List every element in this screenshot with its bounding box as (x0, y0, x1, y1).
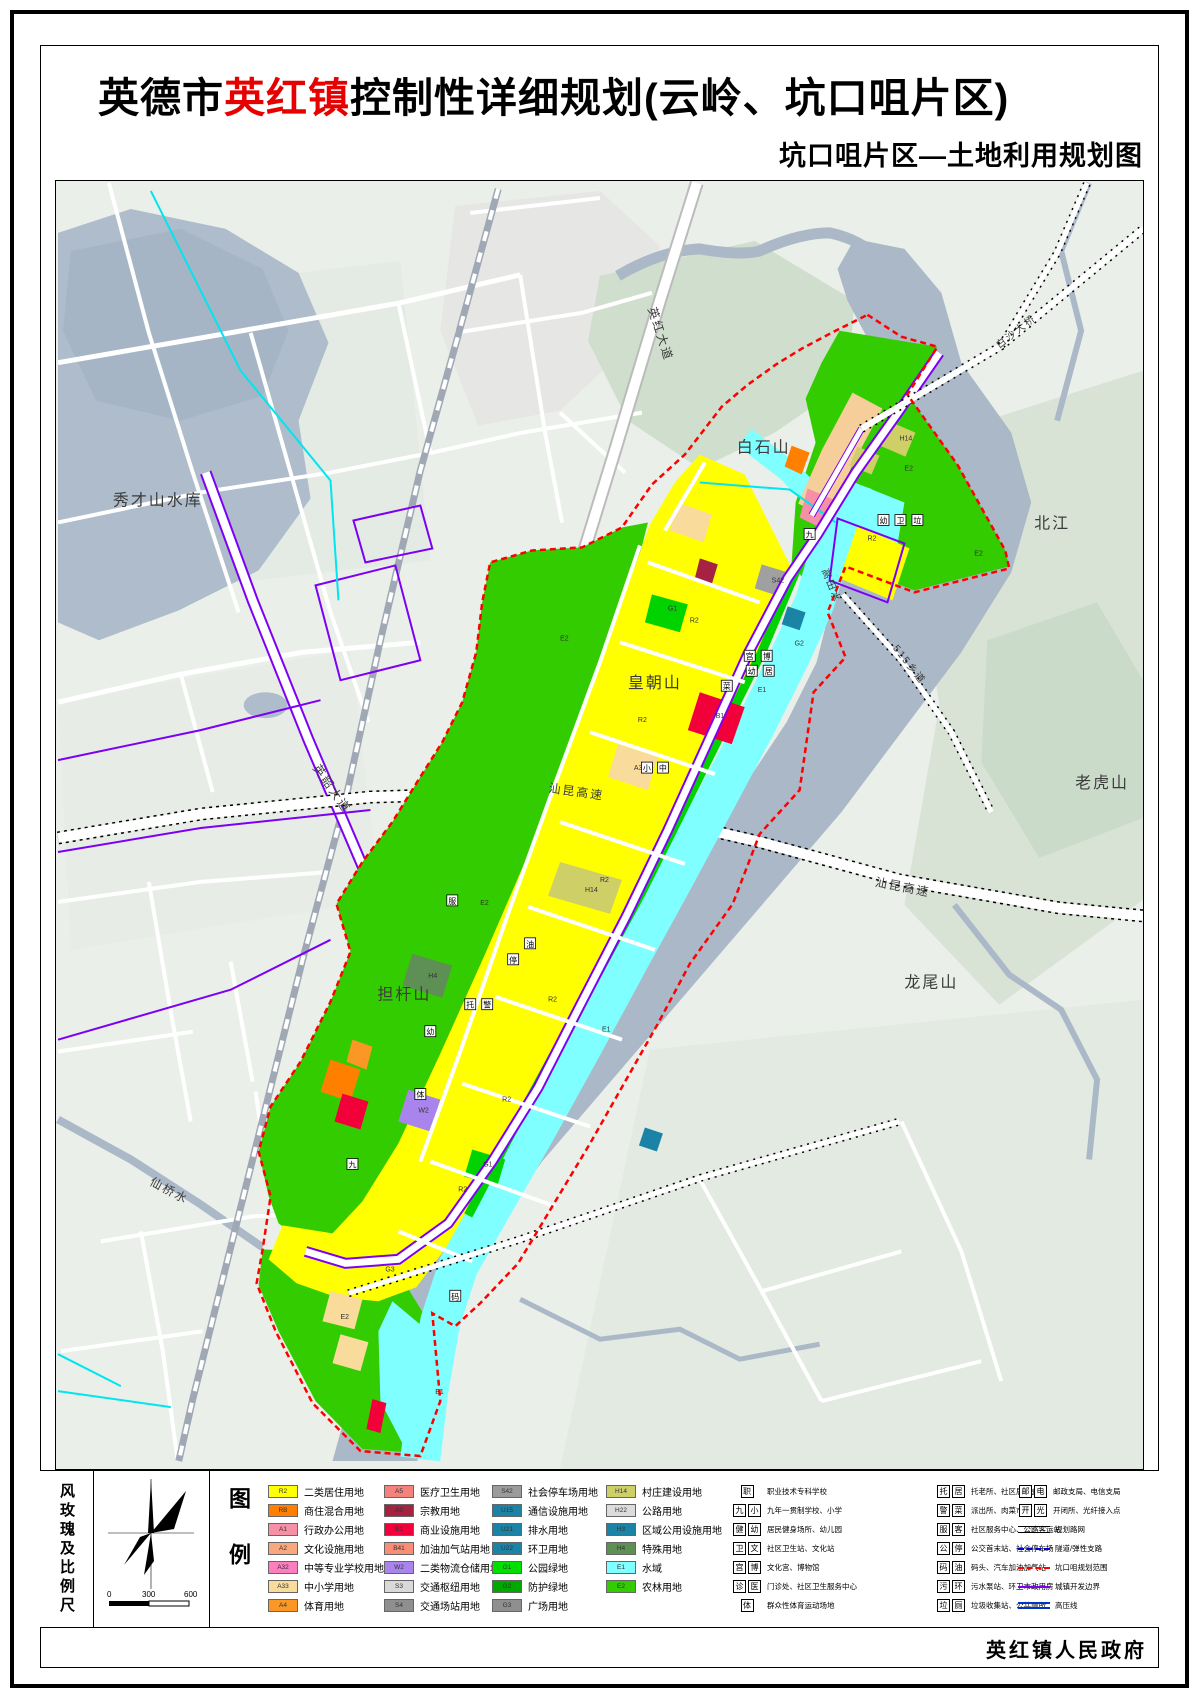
legend-swatch: G3 (492, 1599, 522, 1612)
legend-item: H22公路用地 (606, 1501, 722, 1520)
map-facility-icon: 博 (761, 650, 772, 661)
legend-label: 宗教用地 (420, 1503, 460, 1518)
map-label: 老虎山 (1075, 774, 1129, 792)
legend-icon-pair: 邮电 (1018, 1485, 1048, 1498)
windrose-graphic: 0300600 (94, 1471, 210, 1627)
map-facility-icon: 垃 (912, 514, 923, 525)
legend-label: 隧道/弹性支路 (1055, 1543, 1102, 1554)
plan-sheet: 英德市英红镇控制性详细规划(云岭、坑口咀片区) 坑口咀片区—土地利用规划图 (0, 0, 1199, 1698)
facility-icon: 污 (937, 1580, 950, 1593)
map-facility-icon: 服 (447, 895, 458, 906)
legend-label: 中等专业学校用地 (304, 1560, 384, 1575)
parcel-code: E1 (602, 1027, 611, 1034)
legend-color-column: R2二类居住用地RB商住混合用地A1行政办公用地A2文化设施用地A32中等专业学… (268, 1482, 384, 1615)
legend-item: 体群众性体育运动场地 (732, 1596, 857, 1615)
line-style-sample (1018, 1526, 1050, 1533)
map-label: 白石山 (737, 439, 791, 457)
legend-item: 隧道/弹性支路 (1018, 1539, 1121, 1558)
scalebar-segment (149, 1601, 189, 1606)
facility-icon: 码 (937, 1561, 950, 1574)
legend-item: G1公园绿地 (492, 1558, 598, 1577)
legend-icon-pair: 九小 (732, 1504, 762, 1517)
legend-icon-pair: 开光 (1018, 1504, 1048, 1517)
parcel-code: G2 (795, 640, 804, 647)
legend-swatch: A4 (268, 1599, 298, 1612)
legend-title: 图例 (222, 1487, 254, 1599)
svg-text:幼: 幼 (426, 1027, 434, 1037)
legend-label: 公园绿地 (528, 1560, 568, 1575)
legend-label: 开闭所、光纤接入点 (1053, 1505, 1121, 1516)
legend-label: 文化设施用地 (304, 1541, 364, 1556)
legend-swatch: H3 (606, 1523, 636, 1536)
map-facility-icon: 托 (465, 999, 476, 1010)
svg-text:小: 小 (643, 764, 651, 773)
svg-text:卫: 卫 (896, 516, 904, 525)
footer-bar: 英红镇人民政府 (40, 1628, 1159, 1668)
legend-swatch: H22 (606, 1504, 636, 1517)
legend-item: S4交通场站用地 (384, 1596, 500, 1615)
parcel-code: W2 (418, 1108, 429, 1115)
legend-item: A32中等专业学校用地 (268, 1558, 384, 1577)
legend-item: H4特殊用地 (606, 1539, 722, 1558)
legend-icon-pair: 职 (732, 1485, 762, 1498)
legend-item: A2文化设施用地 (268, 1539, 384, 1558)
parcel-code: R2 (638, 717, 647, 724)
legend-swatch: S42 (492, 1485, 522, 1498)
legend-label: 水域 (642, 1560, 662, 1575)
title-town-highlight: 英红镇 (224, 75, 350, 121)
legend-icon-pair: 诊医 (732, 1580, 762, 1593)
map-subtitle: 坑口咀片区—土地利用规划图 (779, 134, 1143, 173)
facility-icon: 九 (733, 1504, 746, 1517)
legend-item: 职职业技术专科学校 (732, 1482, 857, 1501)
legend-item: A9宗教用地 (384, 1501, 500, 1520)
page-title: 英德市英红镇控制性详细规划(云岭、坑口咀片区) (98, 64, 1009, 124)
legend-item: W2二类物流仓储用地 (384, 1558, 500, 1577)
legend-item: A4体育用地 (268, 1596, 384, 1615)
legend-item: H3区域公用设施用地 (606, 1520, 722, 1539)
legend-label: 交通枢纽用地 (420, 1579, 480, 1594)
legend-label: 农林用地 (642, 1579, 682, 1594)
facility-icon: 停 (952, 1542, 965, 1555)
legend-swatch: A9 (384, 1504, 414, 1517)
legend-label: 城镇开发边界 (1055, 1581, 1100, 1592)
legend-line-column: 邮电邮政支局、电信支局开光开闭所、光纤接入点规划路网隧道/弹性支路坑口咀规划范围… (1018, 1482, 1121, 1615)
facility-icon: 光 (1034, 1504, 1047, 1517)
legend-swatch: G1 (492, 1561, 522, 1574)
svg-text:托: 托 (466, 1000, 474, 1010)
parcel-code: B1 (716, 713, 725, 720)
map-label: 龙尾山 (904, 974, 958, 992)
legend-item: A1行政办公用地 (268, 1520, 384, 1539)
facility-icon: 托 (937, 1485, 950, 1498)
legend-swatch: S3 (384, 1580, 414, 1593)
svg-text:垃: 垃 (913, 515, 921, 525)
legend-swatch: R2 (268, 1485, 298, 1498)
line-style-sample (1018, 1602, 1050, 1609)
publisher-name: 英红镇人民政府 (986, 1634, 1147, 1663)
svg-text:体: 体 (416, 1090, 424, 1100)
map-facility-icon: 油 (525, 938, 536, 949)
legend-label: 加油加气站用地 (420, 1541, 490, 1556)
svg-text:幼: 幼 (748, 666, 756, 676)
map-label: 秀才山水库 (113, 491, 203, 509)
legend-label: 居民健身场所、幼儿园 (767, 1524, 842, 1535)
svg-text:警: 警 (483, 1000, 491, 1010)
legend-item: H14村庄建设用地 (606, 1482, 722, 1501)
legend-icon-column: 职职业技术专科学校九小九年一贯制学校、小学健幼居民健身场所、幼儿园卫文社区卫生站… (732, 1482, 857, 1615)
legend-item: 健幼居民健身场所、幼儿园 (732, 1520, 857, 1539)
legend-icon-pair: 公停 (936, 1542, 966, 1555)
legend-panel: 风玫瑰及比例尺 0300600 图例 R2二类居住用地RB商住混合用地A1行政办… (40, 1470, 1159, 1628)
legend-label: 商住混合用地 (304, 1503, 364, 1518)
svg-text:中: 中 (659, 763, 667, 773)
facility-icon: 博 (748, 1561, 761, 1574)
legend-item: U21排水用地 (492, 1520, 598, 1539)
map-facility-icon: 中 (657, 762, 668, 773)
parcel-code: H4 (428, 973, 437, 980)
facility-icon: 服 (937, 1523, 950, 1536)
facility-icon: 环 (952, 1580, 965, 1593)
legend-label: 群众性体育运动场地 (767, 1600, 835, 1611)
windrose-petal (148, 1479, 154, 1533)
svg-text:幼: 幼 (879, 515, 887, 525)
legend-item: 宫博文化宫、博物馆 (732, 1558, 857, 1577)
legend-icon-pair: 污环 (936, 1580, 966, 1593)
legend-item: B41加油加气站用地 (384, 1539, 500, 1558)
legend-swatch: A32 (268, 1561, 298, 1574)
legend-swatch: E1 (606, 1561, 636, 1574)
line-style-sample (1018, 1548, 1050, 1550)
legend-label: 排水用地 (528, 1522, 568, 1537)
map-facility-icon: 小 (641, 762, 652, 773)
windrose-box: 0300600 (94, 1471, 210, 1627)
legend-swatch: A5 (384, 1485, 414, 1498)
legend-label: 公路用地 (642, 1503, 682, 1518)
legend-swatch: W2 (384, 1561, 414, 1574)
legend-label: 文化宫、博物馆 (767, 1562, 820, 1573)
legend-item: 卫文社区卫生站、文化站 (732, 1539, 857, 1558)
legend-item: U15通信设施用地 (492, 1501, 598, 1520)
legend-icon-pair: 卫文 (732, 1542, 762, 1555)
legend-item: 九小九年一贯制学校、小学 (732, 1501, 857, 1520)
parcel-code: G3 (385, 1266, 394, 1273)
legend-item: A5医疗卫生用地 (384, 1482, 500, 1501)
legend-item: S42社会停车场用地 (492, 1482, 598, 1501)
scalebar-tick: 300 (142, 1590, 156, 1599)
parcel-code: E2 (904, 466, 913, 473)
svg-text:九: 九 (806, 530, 814, 539)
legend-label: 坑口咀规划范围 (1055, 1562, 1108, 1573)
facility-icon: 文 (748, 1542, 761, 1555)
map-facility-icon: 菜 (721, 680, 732, 691)
lowland-south (560, 1000, 1143, 1469)
facility-icon: 菜 (952, 1504, 965, 1517)
legend-icon-pair: 垃厕 (936, 1599, 966, 1612)
legend-label: 医疗卫生用地 (420, 1484, 480, 1499)
legend-swatch: B1 (384, 1523, 414, 1536)
line-style-sample (1018, 1586, 1050, 1588)
legend-label: 门诊处、社区卫生服务中心 (767, 1581, 857, 1592)
facility-icon: 客 (952, 1523, 965, 1536)
parcel-code: S42 (772, 577, 785, 584)
legend-color-column: S42社会停车场用地U15通信设施用地U21排水用地U22环卫用地G1公园绿地G… (492, 1482, 598, 1615)
legend-item: 规划路网 (1018, 1520, 1121, 1539)
map-facility-icon: 码 (450, 1290, 461, 1301)
legend-label: 通信设施用地 (528, 1503, 588, 1518)
legend-icon-pair: 体 (732, 1599, 762, 1612)
map-canvas: E2E2E2E2E2R2R2R2R2R2R2R2G1G1G2E1E1E1H14H… (56, 181, 1143, 1469)
legend-icon-pair: 健幼 (732, 1523, 762, 1536)
legend-item: R2二类居住用地 (268, 1482, 384, 1501)
map-label: 担杆山 (377, 986, 431, 1004)
map-facility-icon: 九 (347, 1158, 358, 1169)
legend-item: A33中小学用地 (268, 1577, 384, 1596)
legend-item: E2农林用地 (606, 1577, 722, 1596)
svg-text:宫: 宫 (746, 651, 754, 661)
legend-label: 区域公用设施用地 (642, 1522, 722, 1537)
parcel-code: R2 (690, 617, 699, 624)
parcel-code: E1 (435, 1389, 444, 1396)
facility-icon: 幼 (748, 1523, 761, 1536)
legend-item: 城镇开发边界 (1018, 1577, 1121, 1596)
parcel-code: E2 (480, 900, 489, 907)
legend-item: RB商住混合用地 (268, 1501, 384, 1520)
map-label: 北江 (1034, 514, 1070, 532)
parcel-code: R2 (868, 535, 877, 542)
facility-icon: 体 (741, 1599, 754, 1612)
legend-swatch: E2 (606, 1580, 636, 1593)
legend-item: G3广场用地 (492, 1596, 598, 1615)
legend-item: 邮电邮政支局、电信支局 (1018, 1482, 1121, 1501)
facility-icon: 开 (1019, 1504, 1032, 1517)
landuse-map: E2E2E2E2E2R2R2R2R2R2R2R2G1G1G2E1E1E1H14H… (55, 180, 1144, 1470)
parcel-code: R2 (548, 997, 557, 1004)
legend-label: 中小学用地 (304, 1579, 354, 1594)
legend-label: 职业技术专科学校 (767, 1486, 827, 1497)
scalebar-ticks: 0300600 (107, 1590, 198, 1599)
legend-label: 规划路网 (1055, 1524, 1085, 1535)
scalebar-tick: 600 (184, 1590, 198, 1599)
parcel-code: R2 (502, 1097, 511, 1104)
legend-label: 高压线 (1055, 1600, 1078, 1611)
map-facility-icon: 幼 (878, 514, 889, 525)
legend-item: 诊医门诊处、社区卫生服务中心 (732, 1577, 857, 1596)
facility-icon: 健 (733, 1523, 746, 1536)
map-facility-icon: 停 (508, 954, 519, 965)
parcel-code: R2 (458, 1186, 467, 1193)
legend-item: U22环卫用地 (492, 1539, 598, 1558)
facility-icon: 居 (952, 1485, 965, 1498)
map-facility-icon: 体 (415, 1089, 426, 1100)
facility-icon: 邮 (1019, 1485, 1032, 1498)
facility-icon: 医 (748, 1580, 761, 1593)
legend-label: 环卫用地 (528, 1541, 568, 1556)
facility-icon: 电 (1034, 1485, 1047, 1498)
facility-icon: 油 (952, 1561, 965, 1574)
legend-item: 高压线 (1018, 1596, 1121, 1615)
parcel-code: E2 (974, 550, 983, 557)
legend-label: 体育用地 (304, 1598, 344, 1613)
legend-label: 二类物流仓储用地 (420, 1560, 500, 1575)
facility-icon: 诊 (733, 1580, 746, 1593)
svg-text:菜: 菜 (723, 681, 731, 691)
legend-swatch: RB (268, 1504, 298, 1517)
facility-icon: 公 (937, 1542, 950, 1555)
legend-label: 村庄建设用地 (642, 1484, 702, 1499)
legend-swatch: A33 (268, 1580, 298, 1593)
legend-label: 商业设施用地 (420, 1522, 480, 1537)
legend-item: E1水域 (606, 1558, 722, 1577)
svg-text:停: 停 (509, 955, 517, 965)
facility-icon: 宫 (733, 1561, 746, 1574)
map-facility-icon: 卫 (895, 514, 906, 525)
legend-label: 广场用地 (528, 1598, 568, 1613)
map-facility-icon: 幼 (746, 665, 757, 676)
parcel-code: H14 (585, 887, 598, 894)
legend-swatch: U15 (492, 1504, 522, 1517)
parcel-code: G1 (668, 605, 677, 612)
legend-item: G2防护绿地 (492, 1577, 598, 1596)
legend-label: 社会停车场用地 (528, 1484, 598, 1499)
facility-icon: 卫 (733, 1542, 746, 1555)
svg-text:码: 码 (451, 1292, 459, 1301)
parcel-code: G1 (483, 1161, 492, 1168)
legend-label: 防护绿地 (528, 1579, 568, 1594)
parcel-code: R2 (600, 877, 609, 884)
legend-swatch: S4 (384, 1599, 414, 1612)
legend-swatch: B41 (384, 1542, 414, 1555)
legend-item: 坑口咀规划范围 (1018, 1558, 1121, 1577)
map-label: 皇朝山 (628, 674, 682, 692)
facility-icon: 小 (748, 1504, 761, 1517)
legend-label: 交通场站用地 (420, 1598, 480, 1613)
legend-swatch: A1 (268, 1523, 298, 1536)
parcel-code: E2 (340, 1314, 349, 1321)
legend-swatch: U21 (492, 1523, 522, 1536)
windrose-sidebar-label: 风玫瑰及比例尺 (40, 1471, 94, 1627)
legend-label: 九年一贯制学校、小学 (767, 1505, 842, 1516)
legend-item: 开光开闭所、光纤接入点 (1018, 1501, 1121, 1520)
legend-swatch: G2 (492, 1580, 522, 1593)
legend-label: 二类居住用地 (304, 1484, 364, 1499)
legend-icon-pair: 宫博 (732, 1561, 762, 1574)
legend-label: 邮政支局、电信支局 (1053, 1486, 1121, 1497)
facility-icon: 厕 (952, 1599, 965, 1612)
legend-icon-pair: 服客 (936, 1523, 966, 1536)
legend-label: 行政办公用地 (304, 1522, 364, 1537)
scalebar-segment (109, 1601, 149, 1606)
svg-text:居: 居 (765, 667, 773, 676)
map-facility-icon: 居 (763, 665, 774, 676)
legend-label: 社区卫生站、文化站 (767, 1543, 835, 1554)
map-facility-icon: 幼 (425, 1026, 436, 1037)
map-facility-icon: 警 (482, 999, 493, 1010)
windrose-petal (151, 1491, 186, 1533)
map-facility-icon: 九 (804, 528, 815, 539)
legend-color-column: H14村庄建设用地H22公路用地H3区域公用设施用地H4特殊用地E1水域E2农林… (606, 1482, 722, 1596)
svg-text:服: 服 (448, 897, 456, 906)
legend-icon-pair: 码油 (936, 1561, 966, 1574)
parcel-code: H14 (899, 436, 912, 443)
svg-text:九: 九 (348, 1160, 356, 1169)
parcel-code: E1 (758, 687, 767, 694)
scalebar-tick: 0 (107, 1590, 112, 1599)
legend-label: 特殊用地 (642, 1541, 682, 1556)
facility-icon: 警 (937, 1504, 950, 1517)
legend-icon-pair: 警菜 (936, 1504, 966, 1517)
legend-swatch: H14 (606, 1485, 636, 1498)
legend-swatch: H4 (606, 1542, 636, 1555)
legend-item: B1商业设施用地 (384, 1520, 500, 1539)
title-suffix: 控制性详细规划(云岭、坑口咀片区) (350, 75, 1009, 121)
legend-color-column: A5医疗卫生用地A9宗教用地B1商业设施用地B41加油加气站用地W2二类物流仓储… (384, 1482, 500, 1615)
facility-icon: 职 (741, 1485, 754, 1498)
parcel-code: E2 (560, 635, 569, 642)
title-prefix: 英德市 (98, 75, 224, 121)
legend-item: S3交通枢纽用地 (384, 1577, 500, 1596)
line-style-sample (1018, 1567, 1050, 1569)
svg-text:博: 博 (763, 651, 771, 661)
facility-icon: 垃 (937, 1599, 950, 1612)
legend-icon-pair: 托居 (936, 1485, 966, 1498)
svg-text:油: 油 (526, 939, 534, 949)
map-facility-icon: 宫 (744, 650, 755, 661)
legend-swatch: A2 (268, 1542, 298, 1555)
legend-swatch: U22 (492, 1542, 522, 1555)
